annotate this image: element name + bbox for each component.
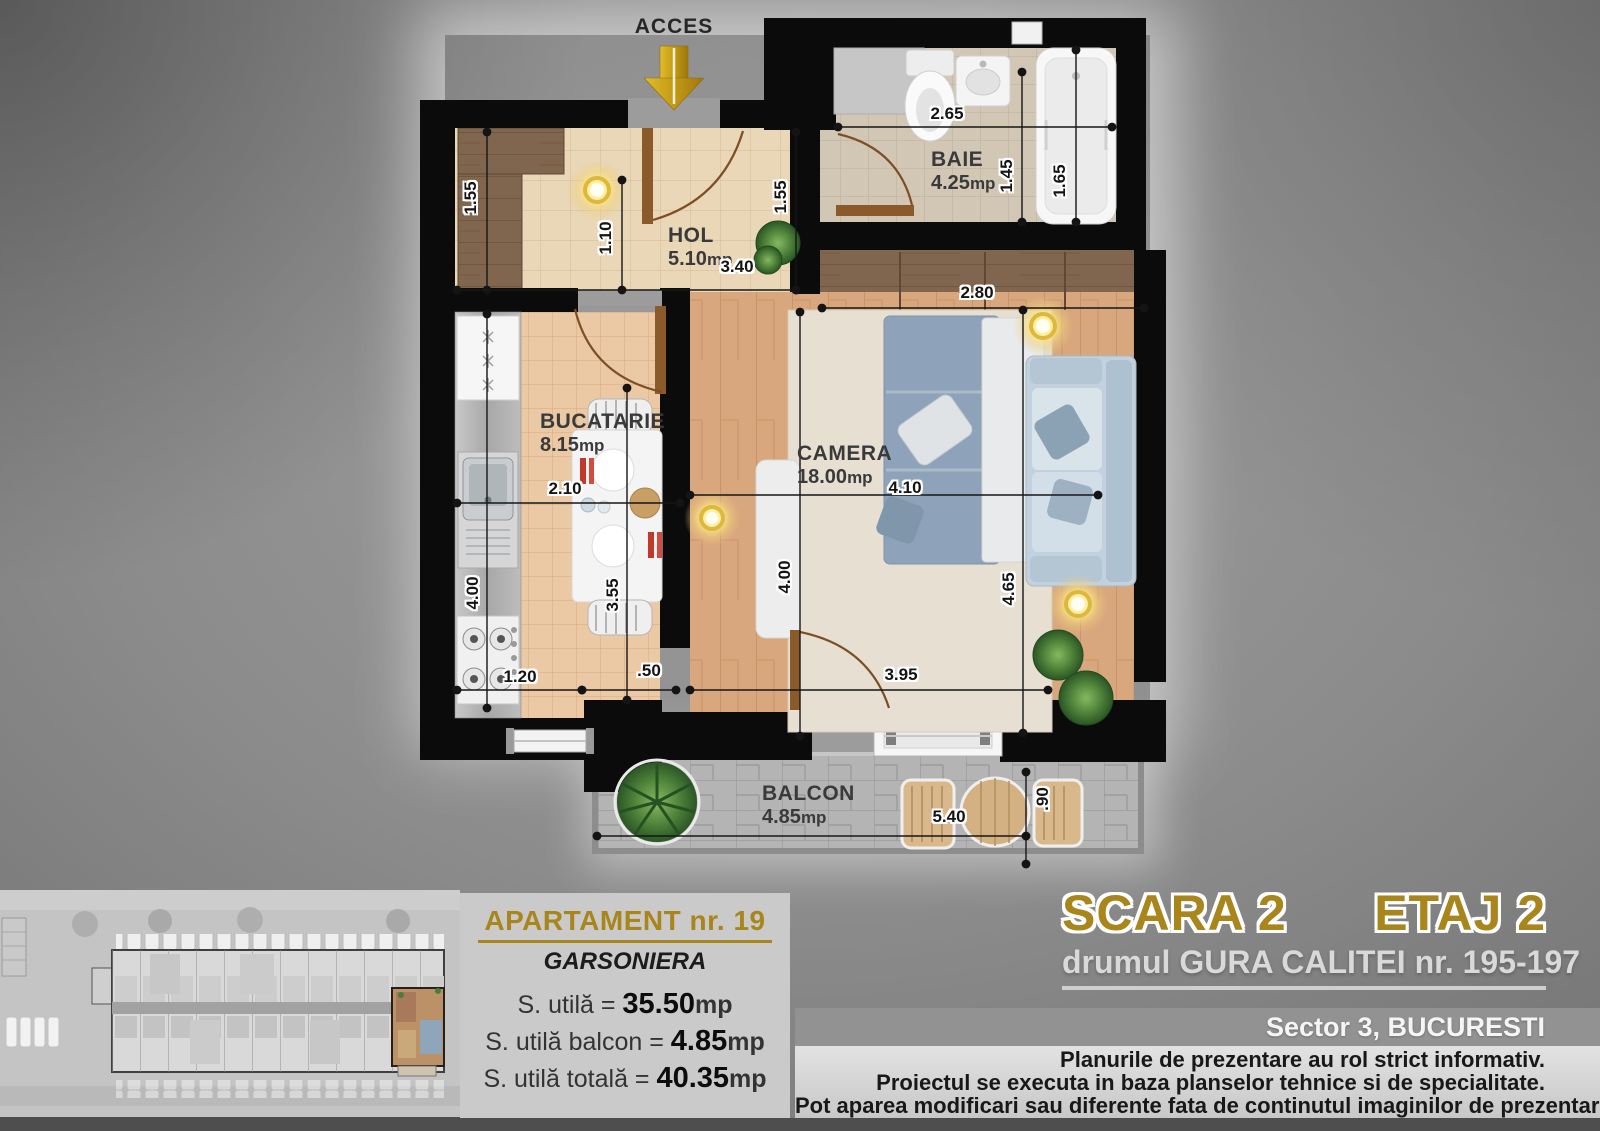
dimension-label: 3.95 xyxy=(884,665,917,685)
apartment-type: GARSONIERA xyxy=(460,948,790,976)
room-name: BALCON xyxy=(762,782,855,806)
dimension-label: 2.80 xyxy=(960,283,993,303)
dimension-label: .90 xyxy=(1033,787,1053,811)
dimension-label: 5.40 xyxy=(932,807,965,827)
room-label-bucatarie: BUCATARIE 8.15mp xyxy=(540,410,665,456)
disclaimer-line: Planurile de prezentare au rol strict in… xyxy=(795,1048,1545,1071)
apartment-title: APARTAMENT nr. 19 xyxy=(478,905,771,943)
dimension-label: 1.65 xyxy=(1050,164,1070,197)
scara-label: SCARA 2 xyxy=(1062,884,1287,942)
room-label-camera: CAMERA 18.00mp xyxy=(797,442,892,488)
room-name: BUCATARIE xyxy=(540,410,665,434)
disclaimer-line: Pot aparea modificari sau diferente fata… xyxy=(795,1094,1545,1117)
dimension-label: 4.10 xyxy=(888,478,921,498)
dimension-label: 1.45 xyxy=(997,159,1017,192)
bottom-strip xyxy=(0,1118,1600,1131)
dimension-label: 1.20 xyxy=(503,667,536,687)
floor-plan xyxy=(0,0,1600,880)
street-address: drumul GURA CALITEI nr. 195-197 xyxy=(1062,944,1546,990)
room-name: HOL xyxy=(668,224,732,248)
dimension-label: 1.55 xyxy=(771,180,791,213)
access-label: ACCES xyxy=(635,15,714,39)
etaj-label: ETAJ 2 xyxy=(1374,884,1546,942)
apartment-info-panel: APARTAMENT nr. 19 GARSONIERA S. utilă = … xyxy=(460,893,790,1124)
dimension-label: 1.10 xyxy=(596,221,616,254)
room-name: BAIE xyxy=(931,148,995,172)
sector-band: Sector 3, BUCURESTI xyxy=(795,1008,1600,1046)
room-area: 8.15mp xyxy=(540,434,665,456)
area-row: S. utilă = 35.50mp xyxy=(460,988,790,1025)
site-plan-thumbnail xyxy=(0,890,460,1131)
disclaimer-band: Planurile de prezentare au rol strict in… xyxy=(795,1046,1600,1118)
room-area: 18.00mp xyxy=(797,466,892,488)
dimension-label: 3.55 xyxy=(603,578,623,611)
dimension-label: 2.65 xyxy=(930,104,963,124)
dimension-label: 4.00 xyxy=(775,560,795,593)
room-label-baie: BAIE 4.25mp xyxy=(931,148,995,194)
dimension-label: 2.10 xyxy=(548,479,581,499)
area-row: S. utilă totală = 40.35mp xyxy=(460,1062,790,1099)
room-label-balcon: BALCON 4.85mp xyxy=(762,782,855,828)
dimension-label: 4.65 xyxy=(999,572,1019,605)
room-area: 4.25mp xyxy=(931,172,995,194)
sector-label: Sector 3, BUCURESTI xyxy=(1266,1008,1545,1046)
dimension-label: 1.55 xyxy=(461,181,481,214)
floor-plan-sheet: ACCES HOL 5.10mp BAIE 4.25mp BUCATARIE 8… xyxy=(0,0,1600,1131)
room-area: 4.85mp xyxy=(762,806,855,828)
dimension-label: .50 xyxy=(637,661,661,681)
location-header: SCARA 2 ETAJ 2 drumul GURA CALITEI nr. 1… xyxy=(1062,884,1546,990)
dimension-label: 4.00 xyxy=(463,576,483,609)
room-name: CAMERA xyxy=(797,442,892,466)
area-row: S. utilă balcon = 4.85mp xyxy=(460,1025,790,1062)
disclaimer-line: Proiectul se executa in baza planselor t… xyxy=(795,1071,1545,1094)
dimension-label: 3.40 xyxy=(720,257,753,277)
